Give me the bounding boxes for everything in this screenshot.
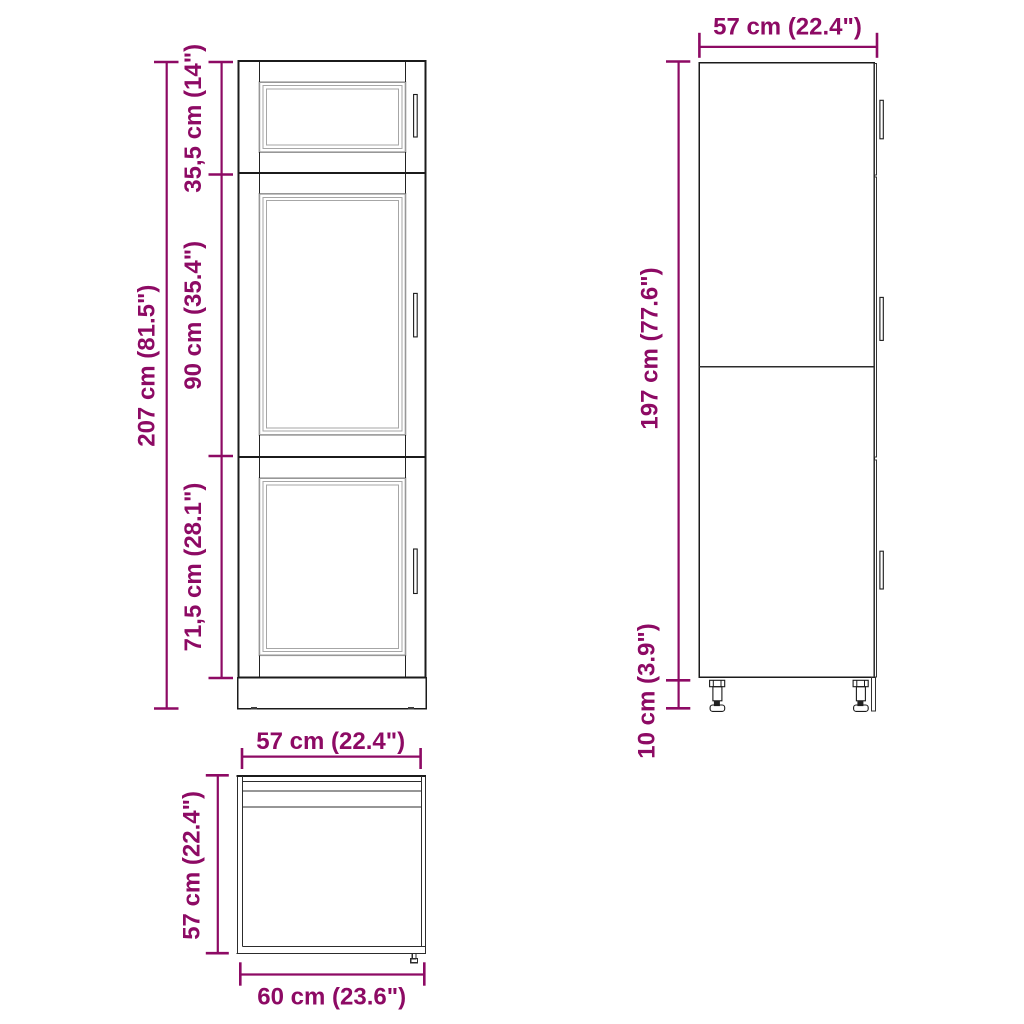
svg-text:90 cm (35.4"): 90 cm (35.4")	[180, 241, 207, 390]
svg-text:197 cm (77.6"): 197 cm (77.6")	[637, 267, 664, 429]
svg-text:10 cm (3.9"): 10 cm (3.9")	[634, 623, 661, 758]
svg-text:71,5 cm (28.1"): 71,5 cm (28.1")	[180, 483, 207, 652]
svg-text:60 cm (23.6"): 60 cm (23.6")	[257, 983, 406, 1010]
svg-text:35,5 cm (14"): 35,5 cm (14")	[180, 44, 207, 193]
svg-text:57 cm (22.4"): 57 cm (22.4")	[256, 728, 405, 755]
svg-text:57 cm (22.4"): 57 cm (22.4")	[713, 14, 862, 41]
svg-text:207 cm (81.5"): 207 cm (81.5")	[133, 285, 160, 447]
svg-text:57 cm (22.4"): 57 cm (22.4")	[178, 791, 205, 940]
